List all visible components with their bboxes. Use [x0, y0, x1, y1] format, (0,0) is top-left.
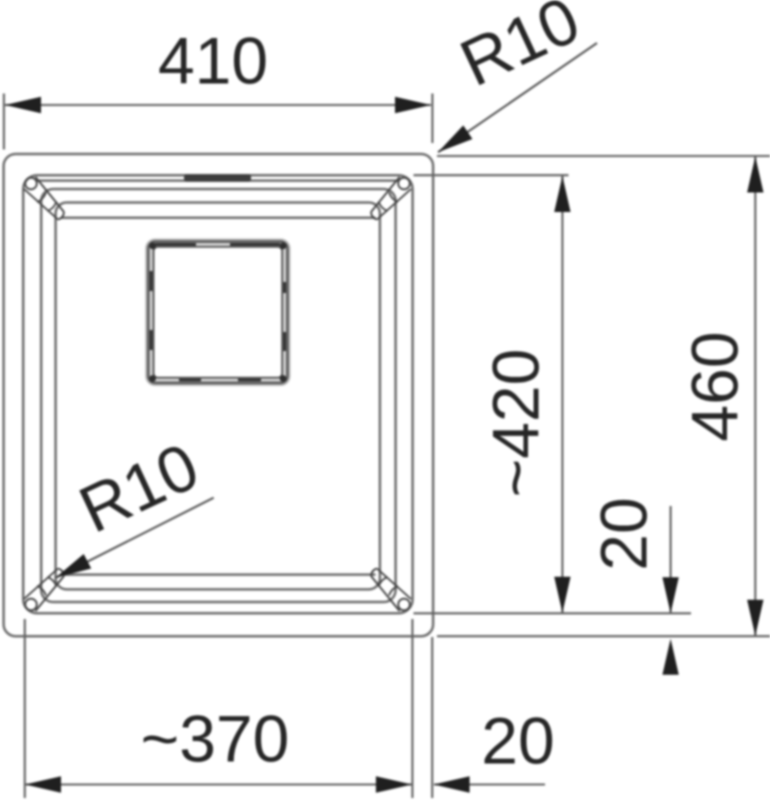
svg-text:~370: ~370	[141, 702, 290, 776]
svg-text:410: 410	[158, 24, 268, 98]
svg-text:R10: R10	[68, 428, 209, 546]
svg-text:20: 20	[481, 704, 554, 778]
svg-text:~420: ~420	[479, 349, 553, 498]
svg-text:R10: R10	[449, 0, 590, 100]
svg-text:20: 20	[587, 497, 661, 570]
svg-text:460: 460	[678, 331, 752, 441]
